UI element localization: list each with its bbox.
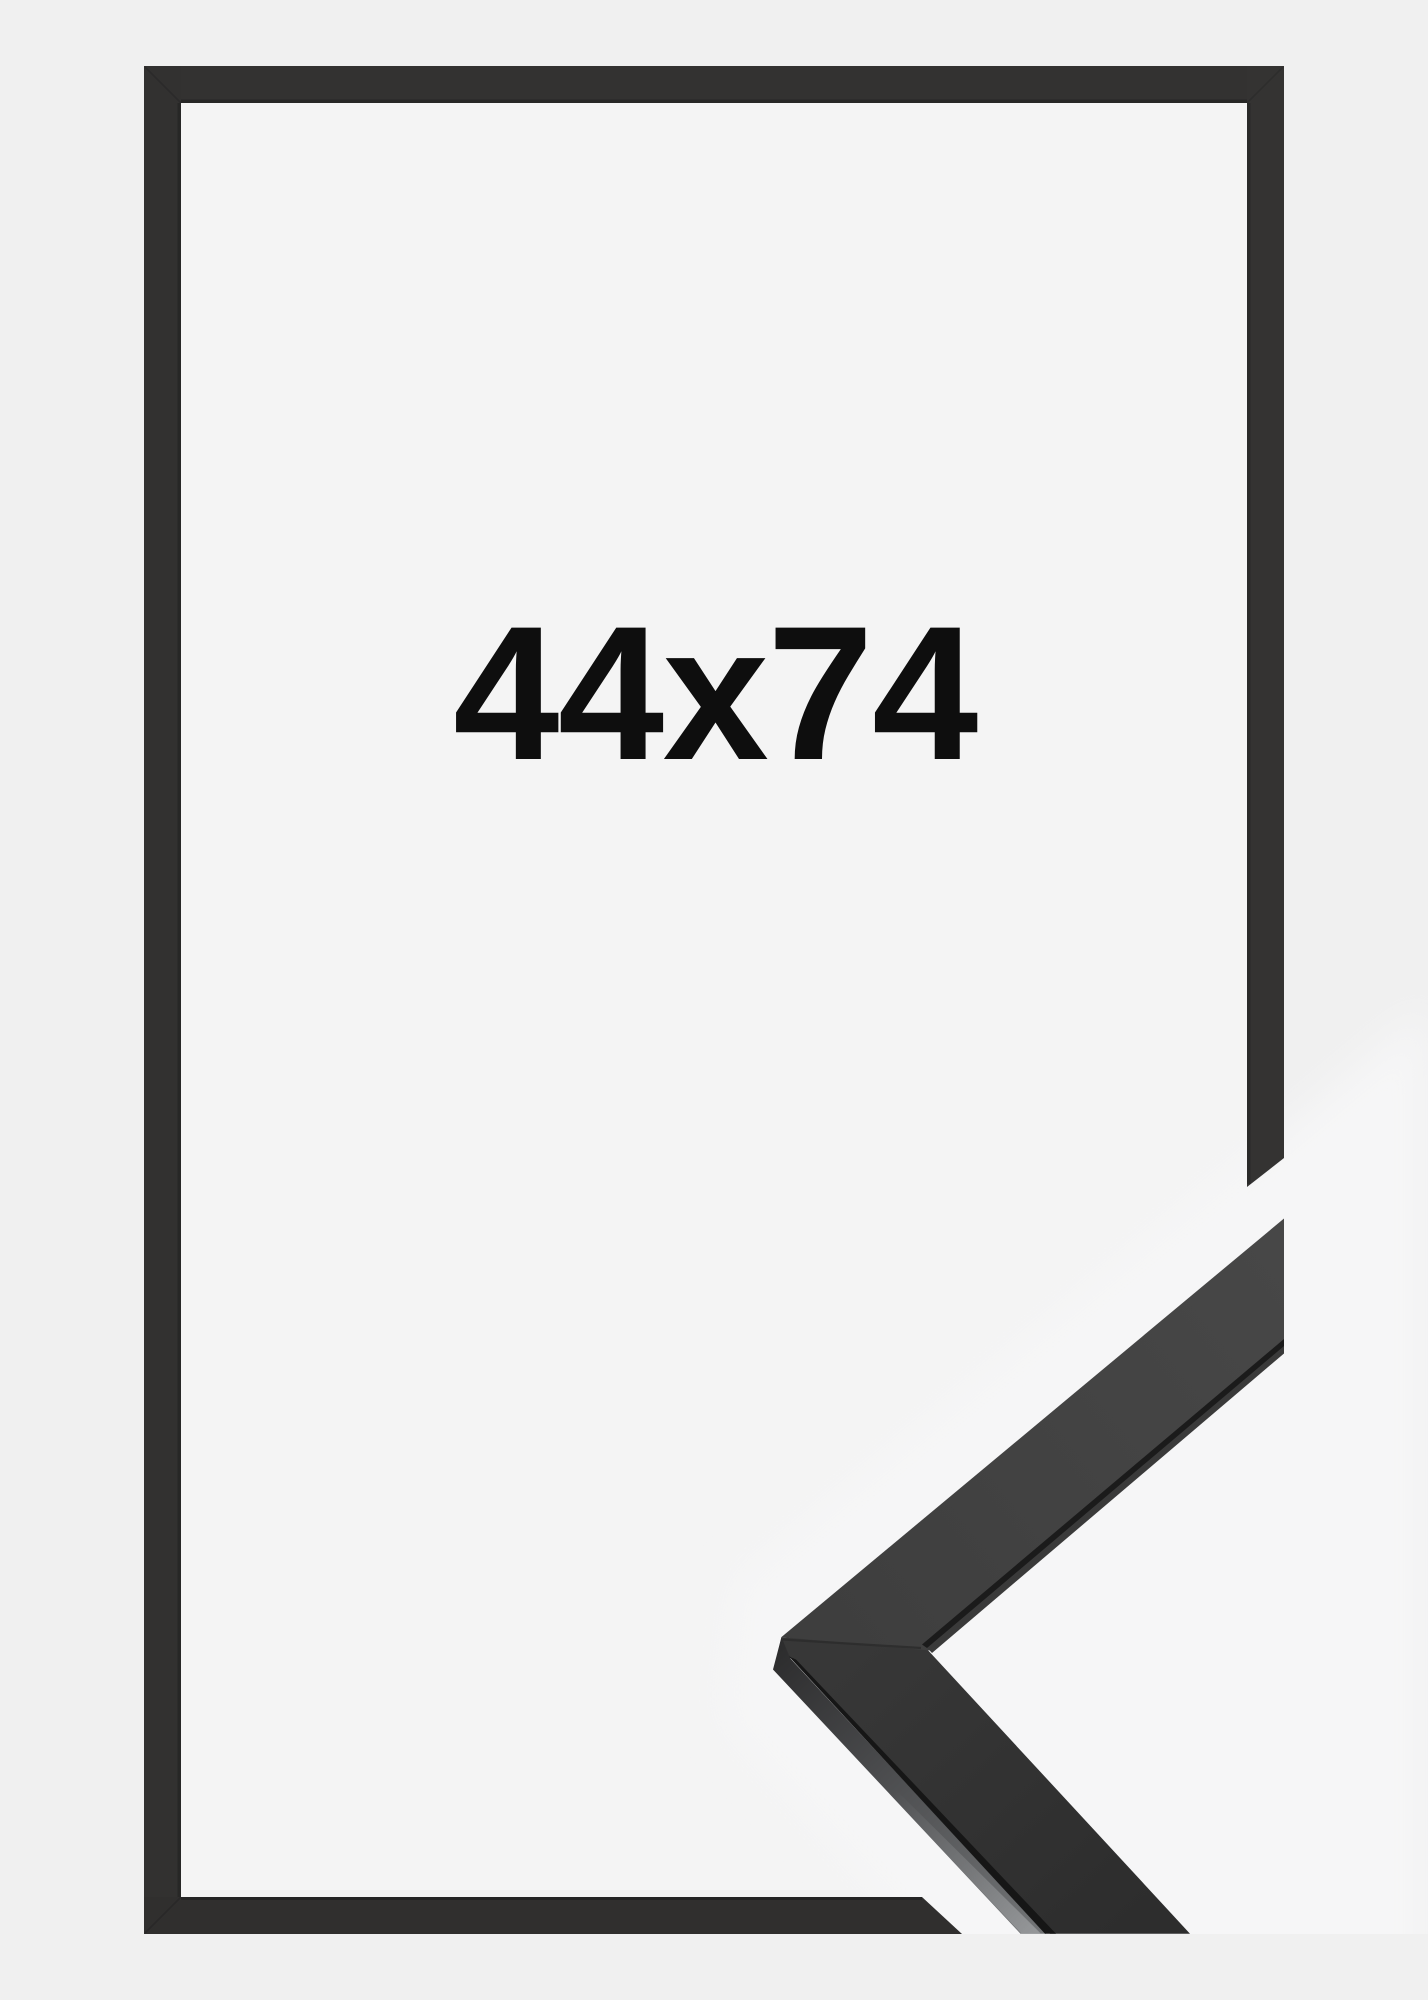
svg-text:44x74: 44x74	[453, 587, 978, 800]
